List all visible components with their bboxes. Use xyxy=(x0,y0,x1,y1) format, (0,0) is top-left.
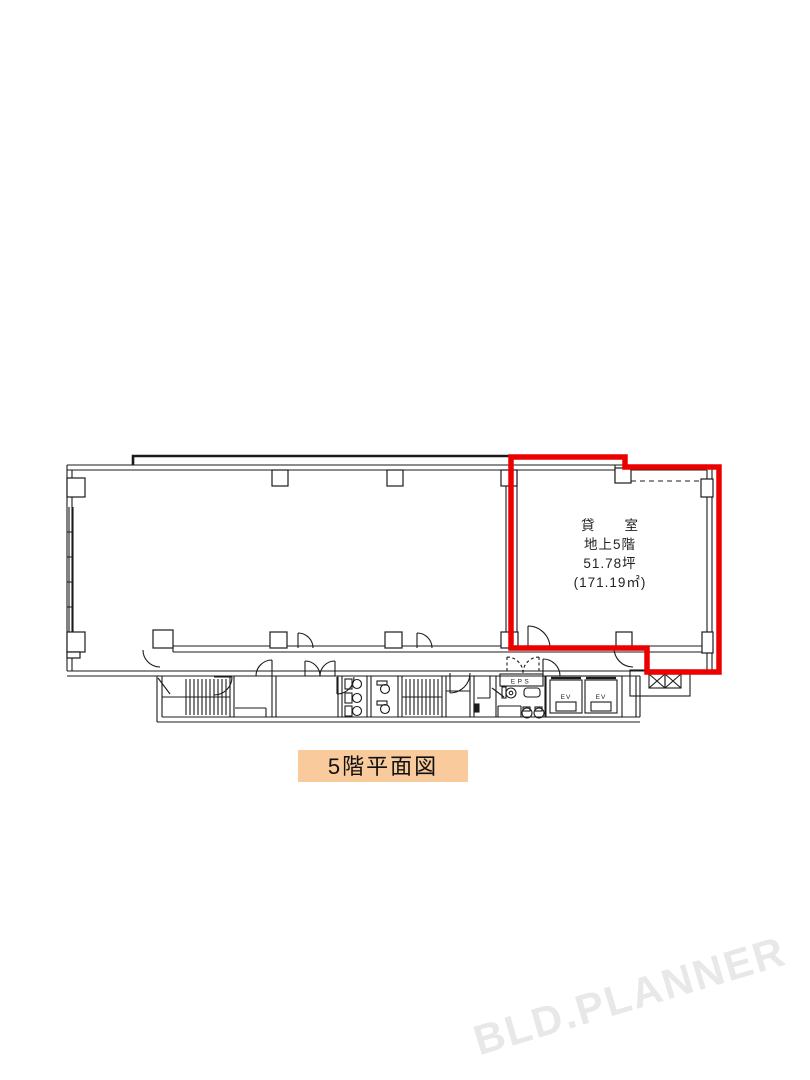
floor-caption: 5階平面図 xyxy=(298,750,468,782)
parapet-line xyxy=(133,456,511,465)
floor-plan-svg: EPS EV EV xyxy=(0,0,810,1080)
eps-label: EPS xyxy=(511,679,532,686)
rental-area-sqm: (171.19㎡) xyxy=(545,573,675,592)
staircase-1 xyxy=(158,678,230,715)
page: { "plan": { "highlight_color": "#ED0000"… xyxy=(0,0,810,1080)
outer-walls xyxy=(67,465,712,722)
elevator-bank: EV EV xyxy=(546,676,622,717)
elevator-2-label: EV xyxy=(596,694,607,701)
rental-room-name: 貸 室 xyxy=(545,516,675,535)
elevator-1-label: EV xyxy=(561,694,572,701)
rental-room-label: 貸 室 地上5階 51.78坪 (171.19㎡) xyxy=(545,516,675,592)
rental-area-tsubo: 51.78坪 xyxy=(545,554,675,573)
staircase-2 xyxy=(402,679,442,715)
rental-floor: 地上5階 xyxy=(545,535,675,554)
